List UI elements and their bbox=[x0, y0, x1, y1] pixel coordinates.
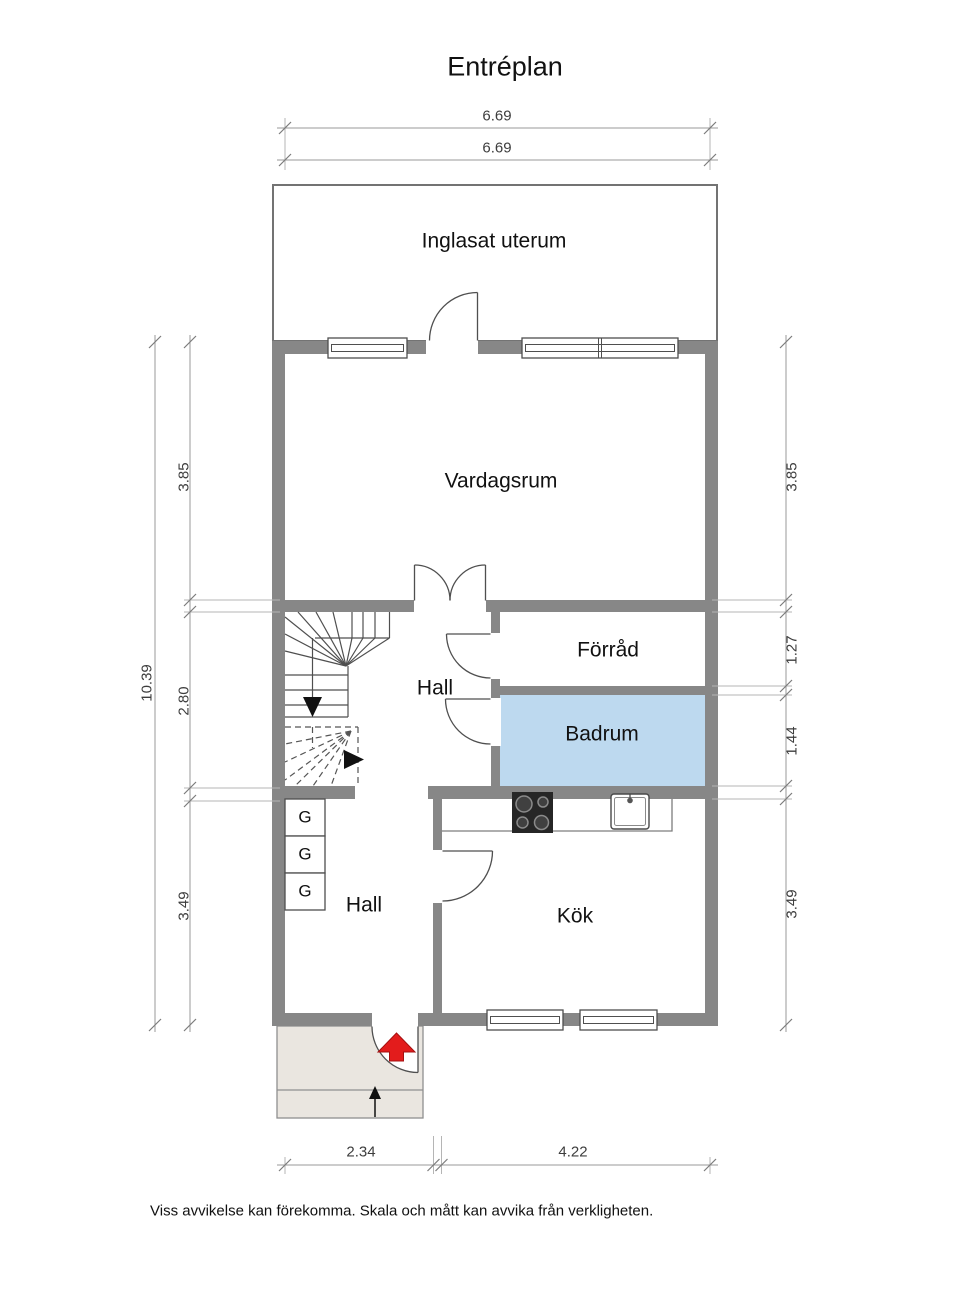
sink-icon bbox=[611, 794, 649, 829]
door-swing-kok bbox=[443, 851, 493, 901]
dim-label-right-0: 3.85 bbox=[785, 462, 800, 491]
disclaimer-text: Viss avvikelse kan förekomma. Skala och … bbox=[150, 1203, 653, 1220]
window bbox=[487, 1010, 563, 1030]
wardrobe-label: G bbox=[298, 883, 311, 900]
room-label-forrad: Förråd bbox=[577, 640, 639, 661]
room-label-kok: Kök bbox=[557, 906, 593, 927]
dim-label-left-total: 10.39 bbox=[140, 664, 155, 702]
dim-label-left-2: 3.49 bbox=[177, 891, 192, 920]
window bbox=[580, 1010, 657, 1030]
staircase-up bbox=[285, 612, 390, 717]
dim-label-bottom-1: 4.22 bbox=[558, 1145, 587, 1160]
wardrobe-label: G bbox=[298, 809, 311, 826]
dim-label-top-outer: 6.69 bbox=[482, 109, 511, 124]
room-label-uterum: Inglasat uterum bbox=[422, 231, 567, 252]
dim-label-right-3: 3.49 bbox=[785, 889, 800, 918]
wardrobe-label: G bbox=[298, 846, 311, 863]
dim-label-bottom-0: 2.34 bbox=[346, 1145, 375, 1160]
floor-plan-canvas bbox=[0, 0, 963, 1315]
room-label-badrum: Badrum bbox=[565, 724, 639, 745]
door-swing-vardagsrum-double bbox=[415, 565, 486, 601]
dim-label-right-1: 1.27 bbox=[785, 635, 800, 664]
uterum-outline bbox=[273, 185, 717, 341]
page-title: Entréplan bbox=[447, 54, 563, 81]
stairs-direction-arrow-icon bbox=[344, 750, 364, 769]
stove-icon bbox=[512, 792, 553, 833]
room-label-hall-upper: Hall bbox=[417, 678, 453, 699]
window bbox=[328, 338, 407, 358]
window bbox=[522, 338, 678, 358]
door-swing-forrad bbox=[447, 634, 491, 678]
dim-label-left-1: 2.80 bbox=[177, 686, 192, 715]
walls bbox=[272, 341, 718, 1026]
room-label-vardagsrum: Vardagsrum bbox=[445, 471, 558, 492]
dim-label-top-inner: 6.69 bbox=[482, 141, 511, 156]
windows bbox=[328, 338, 678, 1030]
dim-label-left-0: 3.85 bbox=[177, 462, 192, 491]
stairs-down-arrow-icon bbox=[303, 697, 322, 717]
floor-plan: Entréplan 6.69 6.69 Inglasat uterum Vard… bbox=[0, 0, 963, 1315]
room-label-hall-lower: Hall bbox=[346, 895, 382, 916]
dim-label-right-2: 1.44 bbox=[785, 726, 800, 755]
door-swing-badrum bbox=[446, 699, 491, 744]
